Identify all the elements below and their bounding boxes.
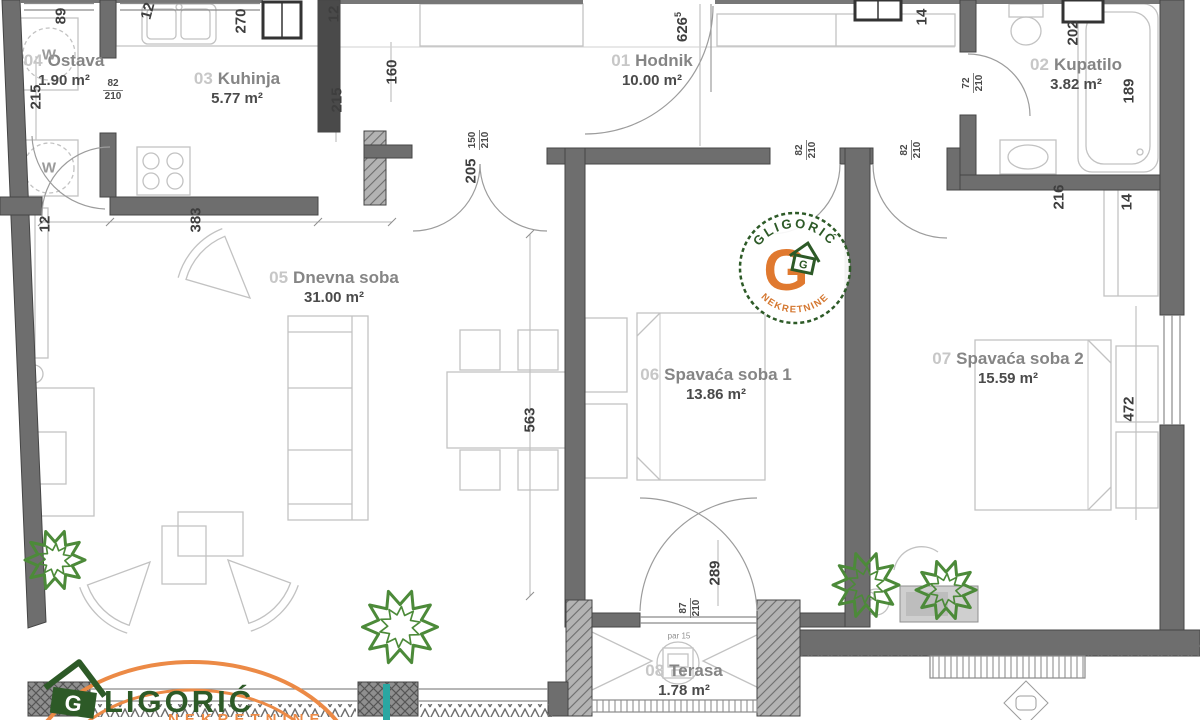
floorplan-canvas: GLIGORIĆ NEKRETNINE G G G LIGORIĆ NEKRET… (0, 0, 1200, 720)
bathroom-sink (1000, 140, 1056, 174)
furniture-layer (20, 2, 1158, 694)
armchair (74, 539, 173, 639)
window-radiator (930, 656, 1085, 678)
armchair (204, 537, 303, 637)
door-arc-terrace-left (640, 498, 757, 611)
terrace-railing (592, 700, 757, 712)
armchair (172, 223, 272, 322)
door-arc-living-right (480, 164, 547, 231)
door-arc-bedroom2 (873, 164, 947, 238)
logo-subtitle: NEKRETNINE (168, 711, 326, 720)
stove (137, 147, 190, 195)
door-arc-bathroom (968, 54, 1030, 116)
door-arc-living-left (413, 164, 480, 231)
coffee-tables (162, 512, 243, 584)
terrace-table (657, 642, 699, 684)
svg-text:G: G (63, 690, 83, 717)
toilet (1009, 4, 1043, 45)
windows-layer (24, 4, 1180, 713)
dimension-lines (36, 4, 1136, 606)
floorplan-drawing: GLIGORIĆ NEKRETNINE G G G LIGORIĆ NEKRET… (0, 0, 1200, 720)
agency-stamp: GLIGORIĆ NEKRETNINE G G (740, 213, 850, 323)
utility-marker (383, 684, 390, 720)
bed-1 (585, 313, 765, 480)
sofa (288, 316, 368, 520)
doors-layer (32, 4, 1030, 611)
door-arc-ostava (32, 136, 105, 209)
door-arc-terrace-right (640, 498, 757, 611)
washing-machine (20, 18, 78, 196)
dining-set (447, 330, 567, 490)
plant (363, 591, 438, 662)
bathtub (1078, 4, 1158, 172)
drain-marker (1004, 681, 1048, 720)
door-arc-entrance (585, 6, 713, 134)
walls-layer (0, 0, 1200, 717)
bed-2 (975, 340, 1158, 510)
wardrobe (1104, 190, 1158, 296)
